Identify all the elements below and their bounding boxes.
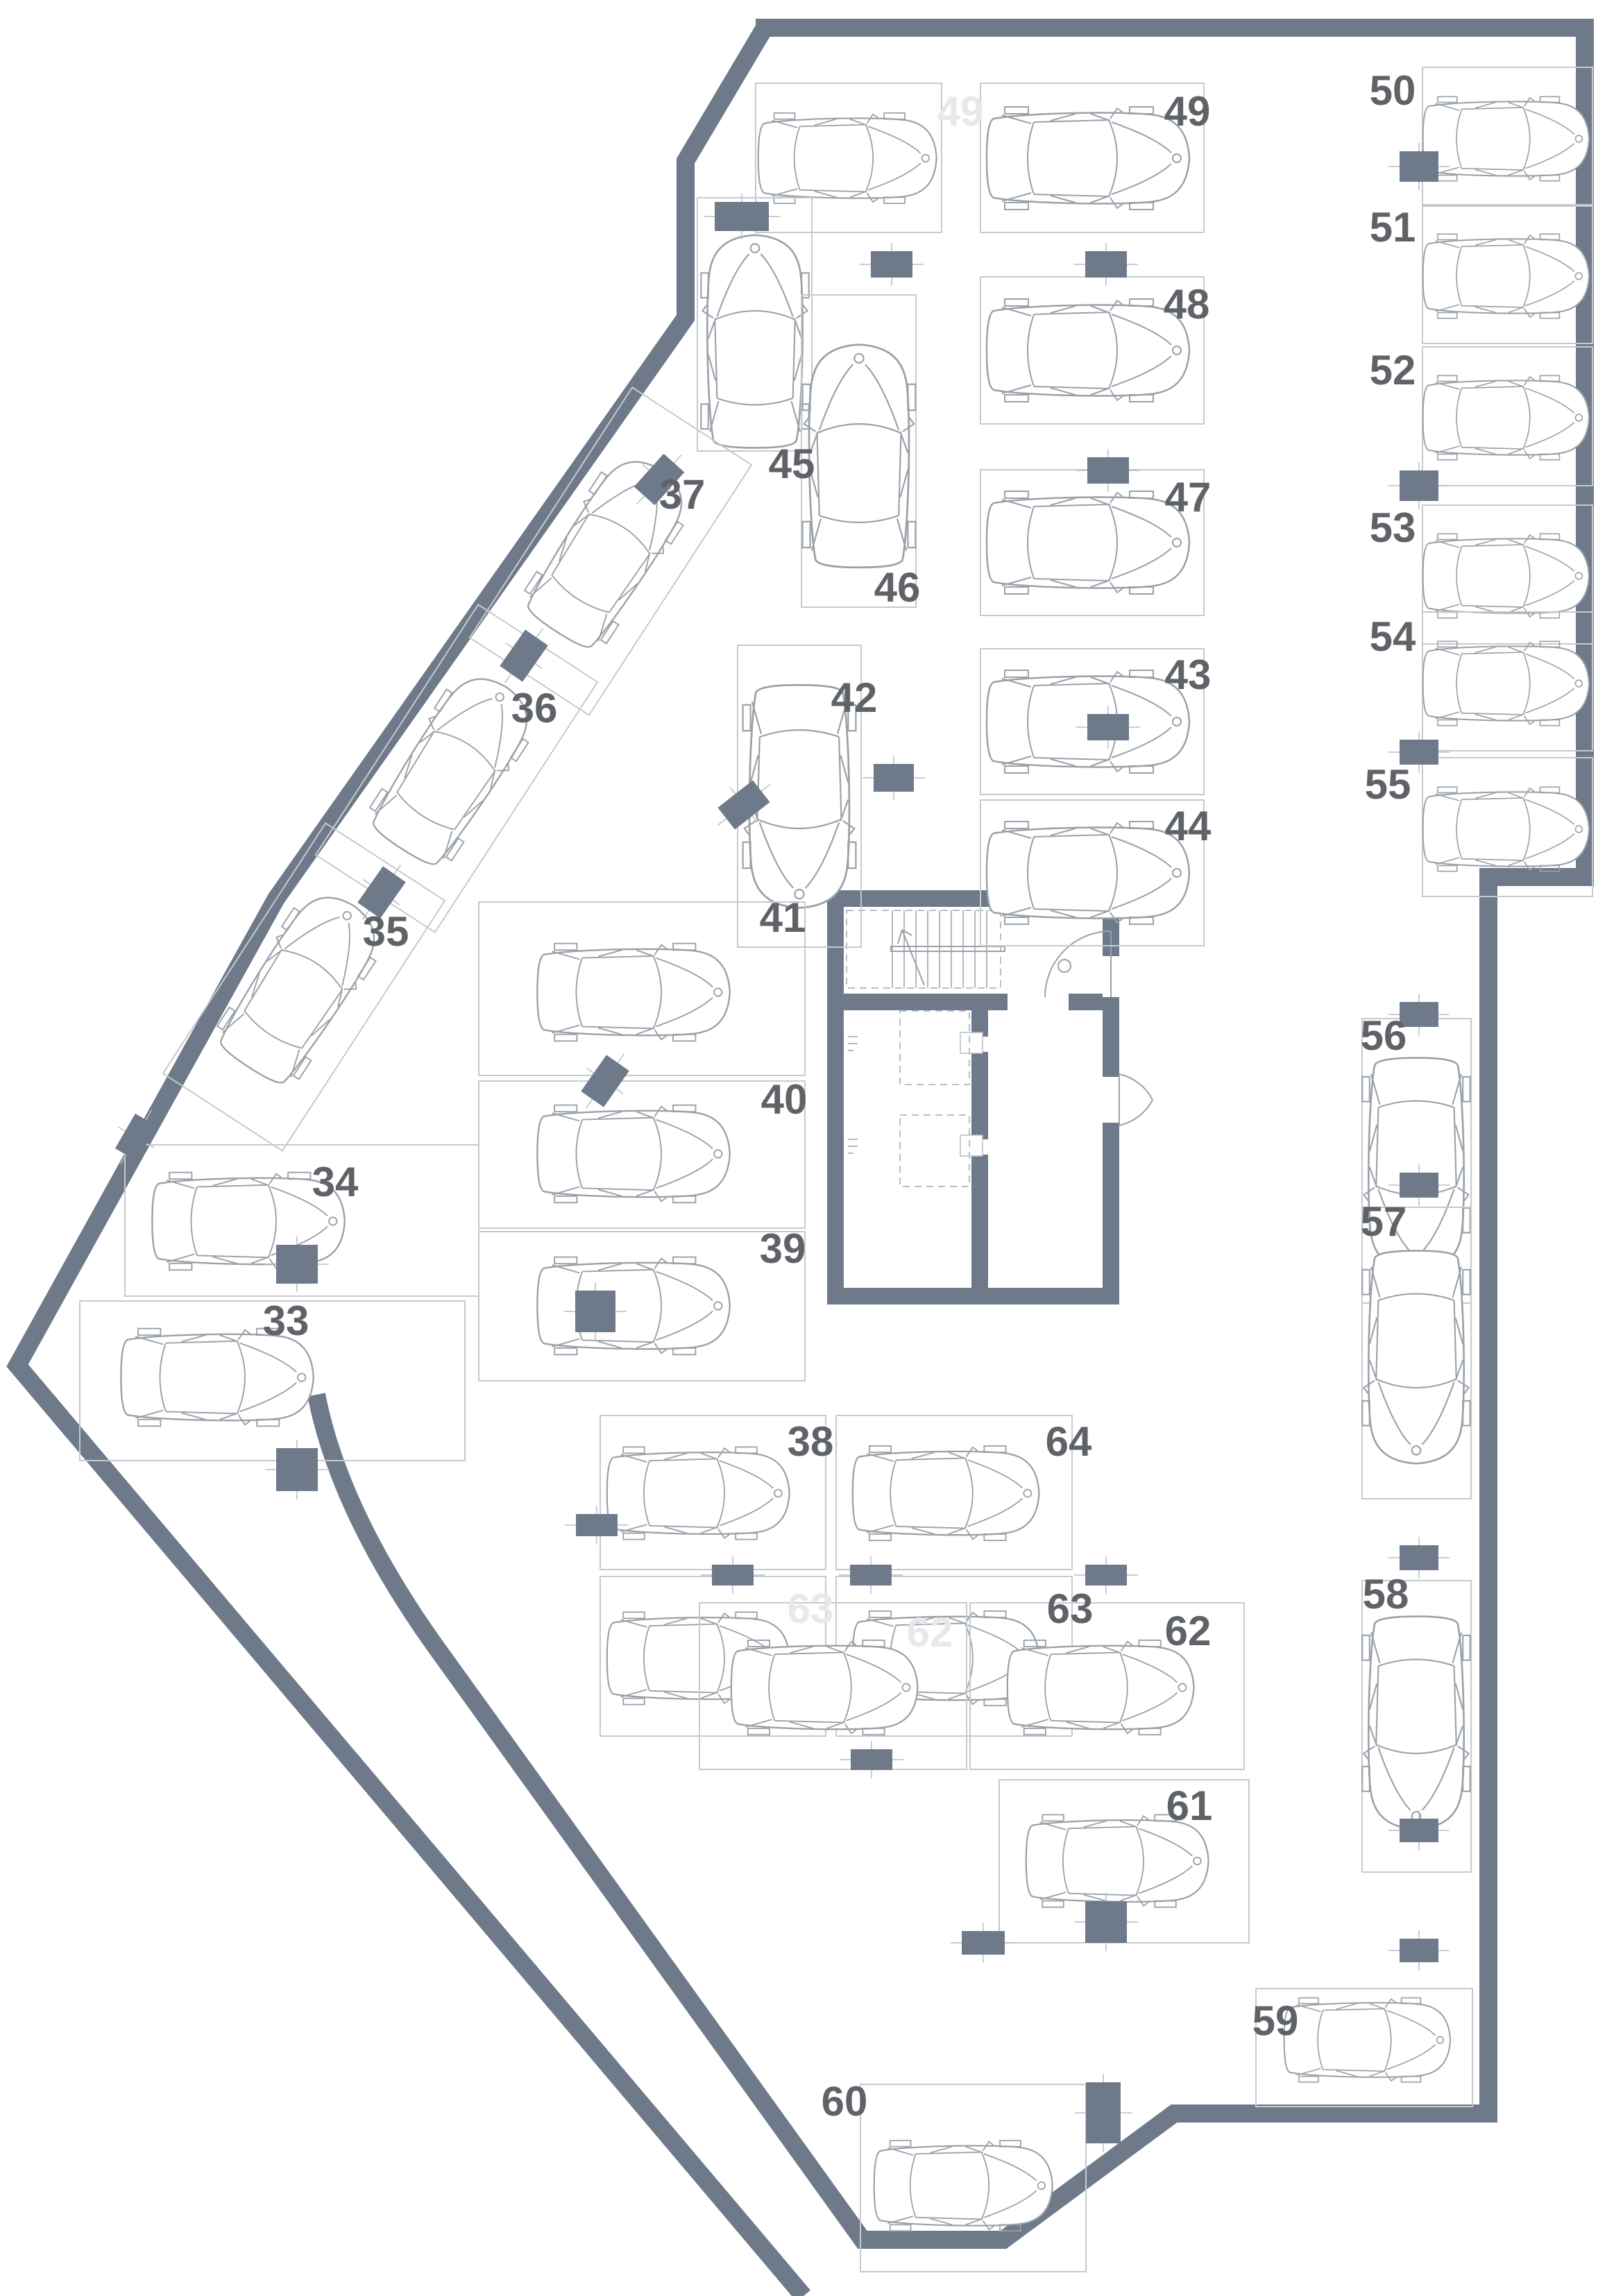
space-label: 63 [1047,1585,1094,1632]
car-icon [987,299,1189,402]
pillar-body [276,1245,318,1284]
space-label: 41 [760,894,806,941]
pillar-body [874,764,914,792]
car-icon [758,113,937,203]
space-label: 58 [1363,1571,1409,1617]
stair-direction-arrow [898,930,924,985]
elevator-indicator-marks [848,1037,858,1051]
car-icon [1423,375,1589,459]
elevator-door-sill [960,1135,983,1156]
core-wall [827,890,844,1304]
parking-space-53 [1422,505,1592,644]
car-icon [1423,534,1589,618]
core-wall [971,1155,988,1288]
car-icon [874,2141,1053,2231]
space-label: 42 [831,674,878,721]
space-label: 44 [1165,803,1212,849]
pillar-body [1400,1173,1438,1198]
space-label: 47 [1165,474,1212,520]
pillar-body [1400,470,1438,501]
core-wall [827,1288,1119,1304]
car-icon [607,1447,790,1539]
core-wall [1069,994,1103,1010]
pillar-body [1400,151,1438,182]
parking-space-40 [479,1081,805,1228]
parking-space-50 [1422,67,1592,206]
parking-space-39 [479,1232,805,1381]
elevator-shaft [900,1115,969,1187]
car-icon [1362,1251,1470,1464]
space-label: 52 [1370,347,1416,393]
pillar-body [500,629,547,681]
pillar [860,243,924,286]
car-icon [1284,1998,1450,2082]
car-icon [1423,96,1589,180]
car-icon [1423,641,1589,725]
pillar-body [1085,1565,1127,1585]
space-label: 33 [263,1298,309,1344]
pillar [1388,462,1450,509]
space-label: 60 [822,2078,868,2125]
stair-rail [891,946,1005,951]
pillar-body [576,1514,618,1536]
stair-elevator-core [827,890,1153,1304]
car-icon [987,491,1189,594]
stair-flight-outline [847,910,1001,988]
car-icon [701,235,808,448]
floor-plan-svg: 4949484743445051525354554546373635343342… [0,0,1623,2296]
car-icon [1362,1617,1470,1830]
space-label: 35 [363,908,409,955]
space-label: 48 [1164,281,1210,328]
pillar-body [575,1291,615,1332]
space-label: 43 [1165,652,1212,698]
space-label: 62 [1165,1608,1212,1654]
space-label: 49 [1164,88,1211,135]
pillar-body [276,1448,318,1491]
parking-space-54 [1422,612,1592,751]
parking-space-51 [1422,205,1592,343]
car-icon [853,1446,1039,1540]
door-swing-arc [1045,931,1111,997]
space-label: 40 [761,1076,808,1123]
space-label: 57 [1361,1198,1407,1245]
space-label: 56 [1361,1012,1407,1059]
car-icon [537,944,729,1041]
car-icon [537,1105,729,1203]
stair-column-circle [1058,960,1071,972]
space-label: 53 [1370,504,1416,551]
pillar-body [715,202,769,231]
elevator-shaft [900,1011,969,1085]
car-icon [987,822,1189,924]
car-icon [1423,787,1589,871]
car-icon [537,1257,729,1355]
car-icon [803,345,916,568]
pillar-body [1400,1939,1438,1962]
core-wall [844,994,1008,1010]
space-label: 46 [874,564,921,611]
pillar [701,1556,765,1594]
pillar-body [850,1565,892,1585]
pillar-body [1087,714,1129,740]
space-label: 39 [760,1225,806,1272]
pillar [840,1741,903,1778]
elevator-door-sill [960,1032,983,1053]
pillar [1076,449,1140,492]
door-swing-arc [1119,1074,1153,1125]
pillar-body [871,251,912,278]
core-wall [1103,1123,1119,1304]
parking-space-46 [801,295,916,607]
pillar [265,1440,329,1499]
space-label: 62 [907,1609,953,1656]
elevator-indicator-marks [848,1139,858,1153]
pillar-body [851,1749,892,1770]
pillar-body [1087,457,1129,484]
parking-space-49-light [756,83,942,232]
pillar [1388,1930,1450,1971]
car-icon [987,107,1189,210]
pillar-body [1400,1819,1438,1842]
space-label: 50 [1370,67,1416,114]
space-label: 59 [1252,1998,1299,2044]
space-label: 37 [659,471,706,518]
pillar-body [1086,2082,1121,2143]
parking-space-41 [479,902,805,1075]
core-wall [1103,997,1119,1077]
parking-space-45 [697,198,812,451]
pillar-body [1085,1901,1127,1943]
pillar [1074,243,1138,286]
space-label: 54 [1370,613,1416,660]
pillar [863,756,925,800]
pillar-body [581,1055,629,1107]
pillar-body [1400,1545,1438,1570]
car-icon [1008,1640,1194,1735]
pillar [951,1923,1016,1963]
core-wall [971,1052,988,1139]
pillar-body [712,1565,754,1585]
space-label: 51 [1370,204,1416,250]
space-label: 64 [1046,1418,1092,1465]
space-label: 34 [312,1159,359,1205]
pillar-body [1085,251,1127,278]
parking-space-64 [836,1415,1072,1570]
car-icon [1423,234,1589,318]
space-label: 61 [1166,1783,1213,1829]
pillar [839,1556,903,1594]
space-label: 49 [937,88,984,135]
space-label: 36 [511,685,558,731]
space-label: 63 [788,1585,834,1632]
car-icon [731,1640,918,1735]
pillar-body [962,1931,1005,1955]
space-label: 55 [1365,761,1411,808]
space-label: 45 [769,441,815,487]
parking-space-52 [1422,347,1592,486]
space-label: 38 [788,1418,834,1465]
